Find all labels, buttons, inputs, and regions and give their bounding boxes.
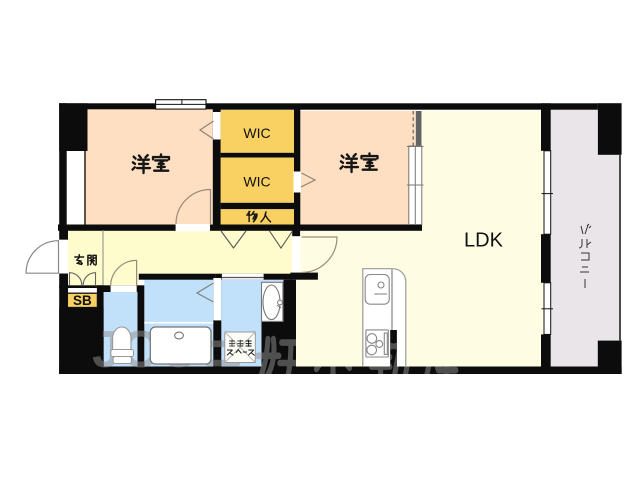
- svg-text:SB: SB: [73, 293, 92, 308]
- svg-text:LDK: LDK: [464, 230, 504, 252]
- svg-text:WIC: WIC: [243, 125, 270, 141]
- svg-text:WIC: WIC: [243, 174, 270, 190]
- svg-text:JCG: JCG: [92, 321, 199, 379]
